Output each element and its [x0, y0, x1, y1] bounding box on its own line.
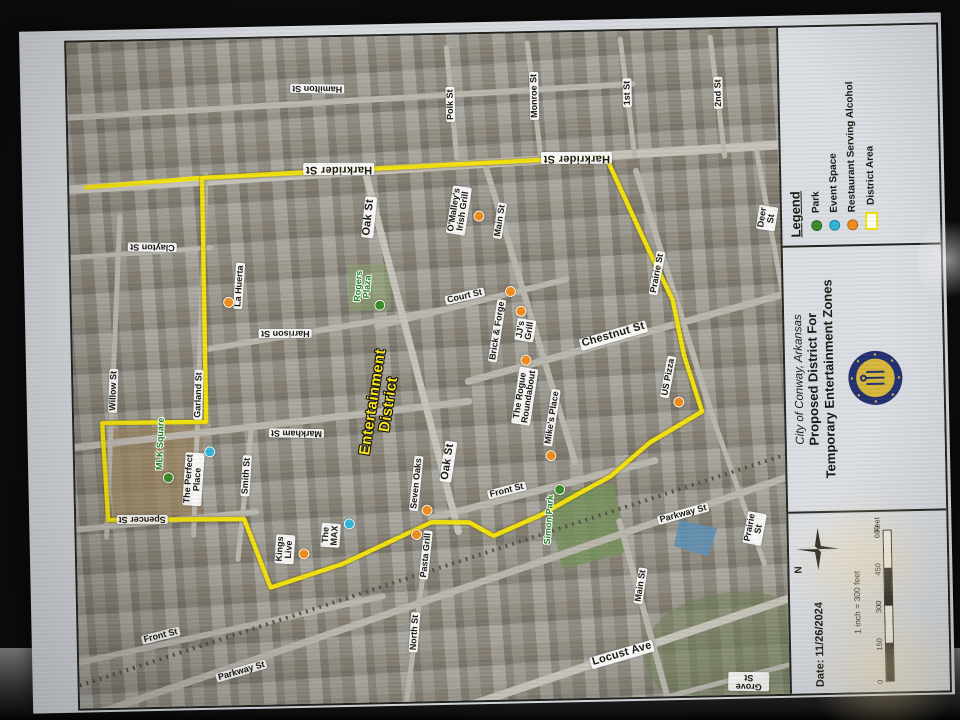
legend-item-park: Park: [807, 31, 822, 231]
poi-label-the-max: The MAX: [320, 523, 340, 548]
street-label-willow-st: Willow St: [108, 369, 119, 413]
street-label-1st-st: 1st St: [622, 79, 632, 108]
street-label-polk-st: Polk St: [446, 87, 456, 122]
scale-tick-0: 0: [876, 680, 885, 684]
scale-tick-300: 300: [874, 600, 883, 613]
poi-label-mike-s-place: Mike's Place: [543, 389, 561, 447]
legend-item-district-area: District Area: [861, 30, 878, 230]
map-labels: Hamilton StPolk StMonroe St1st St2nd StH…: [66, 28, 790, 709]
poi-label-simon-park: Simon Park: [543, 493, 556, 547]
info-panel: Date: 11/26/2024 N: [788, 508, 950, 693]
street-label-harkrider-st: Harkrider St: [541, 152, 612, 164]
park-dot-simon-park: [554, 484, 565, 495]
street-label-court-st: Court St: [444, 287, 485, 305]
poi-label-o-malley-s-irish-grill: O'Malley's Irish Grill: [446, 185, 472, 235]
restaurant-serving-alcohol-swatch-icon: [847, 219, 858, 230]
street-label-prairie-st: Prairie St: [742, 511, 767, 546]
street-label-main-st: Main St: [633, 567, 648, 604]
street-label-oak-st: Oak St: [361, 197, 377, 239]
poi-label-seven-oaks: Seven Oaks: [409, 456, 424, 512]
poi-label-brick-forge: Brick & Forge: [488, 299, 507, 363]
street-label-monroe-st: Monroe St: [529, 72, 539, 120]
street-label-smith-st: Smith St: [240, 456, 252, 497]
street-label-garland-st: Garland St: [193, 370, 204, 420]
scale-tick-600: 600: [872, 526, 881, 539]
title-panel: City of Conway, Arkansas Proposed Distri…: [783, 242, 947, 511]
street-label-harkrider-st: Harkrider St: [304, 163, 375, 175]
poi-label-the-rogue-roundabout: The Rogue Roundabout: [511, 367, 538, 426]
restaurant-dot-brick-forge: [505, 286, 516, 297]
event-dot-the-perfect-place: [204, 446, 215, 457]
restaurant-dot-the-rogue-roundabout: [520, 355, 531, 366]
aerial-map: Hamilton StPolk StMonroe St1st St2nd StH…: [66, 28, 790, 709]
park-swatch-icon: [811, 220, 822, 231]
legend-item-label: District Area: [865, 146, 877, 205]
restaurant-dot-o-malley-s-irish-grill: [473, 211, 484, 222]
poi-label-rogers-plaza: Rogers Plaza: [353, 268, 374, 304]
district-area-swatch-icon: [865, 212, 878, 230]
park-dot-rogers-plaza: [374, 300, 385, 311]
street-label-deer-st: Deer St: [756, 205, 778, 232]
legend-title: Legend: [784, 31, 803, 237]
map-photo: Hamilton StPolk StMonroe St1st St2nd StH…: [0, 0, 960, 720]
street-label-main-st: Main St: [493, 202, 508, 239]
event-space-swatch-icon: [829, 220, 840, 231]
restaurant-dot-pasta-grill: [411, 529, 422, 540]
legend-item-event-space: Event Space: [825, 31, 840, 231]
street-label-2nd-st: 2nd St: [713, 77, 723, 109]
street-label-hamilton-st: Hamilton St: [290, 83, 344, 93]
restaurant-dot-mike-s-place: [545, 450, 556, 461]
district-label-entertainment-district: Entertainment District: [357, 346, 405, 461]
street-label-locust-ave: Locust Ave: [589, 640, 655, 669]
poi-label-la-huerta: La Huerta: [233, 263, 245, 309]
side-panel: Legend ParkEvent SpaceRestaurant Serving…: [776, 25, 950, 694]
city-seal-icon: [845, 348, 904, 407]
legend-item-label: Restaurant Serving Alcohol: [844, 81, 858, 212]
street-label-spencer-st: Spencer St: [117, 514, 168, 524]
street-label-grove-st: Grove St: [728, 672, 769, 691]
restaurant-dot-seven-oaks: [421, 505, 432, 516]
restaurant-dot-us-pizza: [673, 396, 684, 407]
legend-item-restaurant-serving-alcohol: Restaurant Serving Alcohol: [843, 30, 858, 230]
legend-panel: Legend ParkEvent SpaceRestaurant Serving…: [778, 25, 941, 246]
scale-bar: Feet 0150300450600: [873, 532, 895, 682]
street-label-front-st: Front St: [487, 481, 527, 500]
poi-label-jj-s-grill: JJ's Grill: [514, 318, 536, 343]
north-arrow-icon: N: [794, 523, 841, 576]
north-label: N: [793, 566, 804, 573]
street-label-prairie-st: Prairie St: [648, 251, 665, 296]
park-dot-mlk-square: [163, 472, 174, 483]
street-label-chestnut-st: Chestnut St: [579, 320, 649, 350]
street-label-parkway-st: Parkway St: [215, 659, 268, 683]
street-label-north-st: North St: [409, 613, 421, 653]
street-label-oak-st: Oak St: [439, 441, 457, 483]
poi-label-us-pizza: US Pizza: [660, 356, 677, 399]
street-label-clayton-st: Clayton St: [128, 242, 177, 252]
legend-items: ParkEvent SpaceRestaurant Serving Alcoho…: [807, 30, 878, 241]
scale-text: 1 inch = 300 feet: [850, 516, 864, 688]
map-frame: Hamilton StPolk StMonroe St1st St2nd StH…: [64, 22, 952, 710]
restaurant-dot-jj-s-grill: [515, 306, 526, 317]
scale-tick-450: 450: [873, 563, 882, 576]
street-label-parkway-st: Parkway St: [657, 503, 710, 526]
poi-label-mlk-square: MLK Square: [155, 415, 166, 472]
legend-item-label: Park: [810, 191, 821, 213]
map-date: Date: 11/26/2024: [813, 602, 827, 687]
street-label-front-st: Front St: [141, 627, 181, 646]
paper-page: Hamilton StPolk StMonroe St1st St2nd StH…: [19, 12, 955, 713]
scale-tick-150: 150: [875, 638, 884, 651]
poi-label-the-perfect-place: The Perfect Place: [182, 452, 204, 506]
poi-label-pasta-grill: Pasta Grill: [419, 531, 433, 580]
poi-label-kings-live: Kings Live: [274, 534, 295, 564]
street-label-markham-st: Markham St: [269, 428, 324, 438]
street-label-harrison-st: Harrison St: [259, 328, 312, 338]
restaurant-dot-kings-live: [298, 548, 309, 559]
event-dot-the-max: [344, 518, 355, 529]
legend-item-label: Event Space: [828, 153, 840, 213]
